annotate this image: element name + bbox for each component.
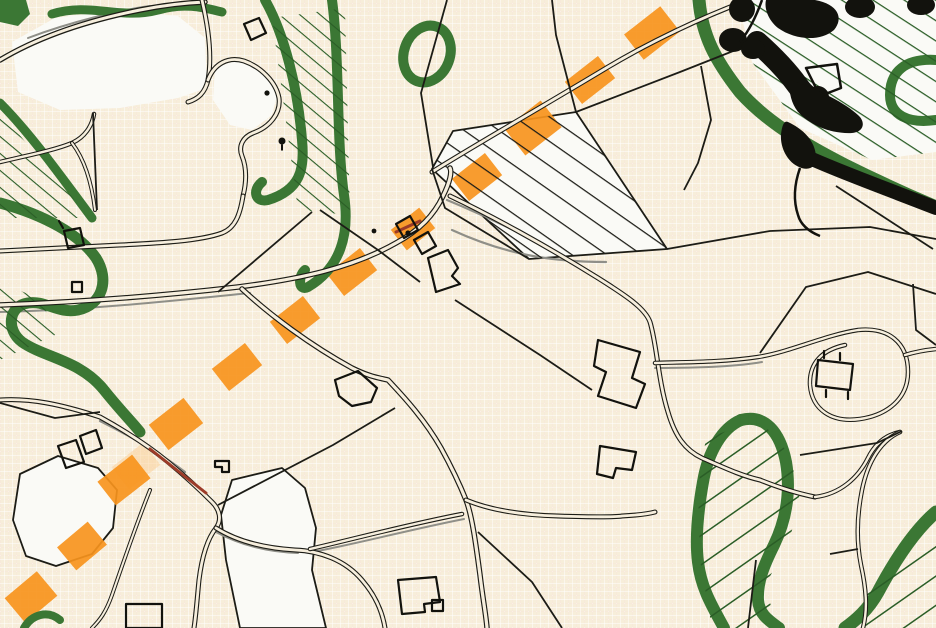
inked-road-band — [796, 152, 936, 208]
building-footprint — [594, 340, 645, 408]
boundary-dot — [264, 90, 269, 95]
tree-icon — [281, 145, 283, 151]
hatched-area — [272, 8, 350, 215]
building-footprint — [816, 360, 853, 390]
building-footprint — [597, 446, 636, 478]
hedge-band — [24, 614, 60, 628]
old-track-line — [312, 519, 464, 552]
building-footprint — [215, 461, 229, 472]
route-road-lines-layer — [150, 221, 420, 493]
building-footprint — [126, 604, 162, 628]
parcel-boundary — [760, 272, 936, 353]
settlement-outline — [795, 168, 820, 236]
building-footprint — [398, 577, 440, 614]
building-footprint — [244, 18, 266, 40]
parcel-boundary — [830, 549, 858, 554]
settlement-blob — [741, 39, 765, 59]
boundary-dot — [372, 229, 377, 234]
route-marker[interactable] — [149, 398, 203, 450]
map-canvas[interactable] — [0, 0, 936, 628]
parcel-boundary — [455, 300, 592, 390]
road-fill — [655, 330, 908, 420]
route-marker[interactable] — [212, 343, 262, 391]
parcel-boundary — [478, 532, 562, 628]
route-road-line — [150, 449, 206, 493]
boundary-dot — [405, 230, 410, 235]
road-casing — [655, 330, 908, 420]
hatched-area — [698, 420, 800, 628]
building-footprint — [72, 282, 82, 292]
parcel-boundary — [684, 66, 711, 190]
field-polygon — [12, 10, 207, 110]
road-fill — [310, 514, 462, 549]
hedge-ring — [395, 19, 458, 89]
woodland-patch — [0, 0, 30, 26]
hatched-area — [0, 112, 90, 218]
building-footprint — [80, 430, 102, 454]
parcel-boundary — [667, 227, 936, 249]
building-footprint — [428, 250, 460, 292]
map-svg[interactable] — [0, 0, 936, 628]
tree-icon — [279, 138, 286, 145]
